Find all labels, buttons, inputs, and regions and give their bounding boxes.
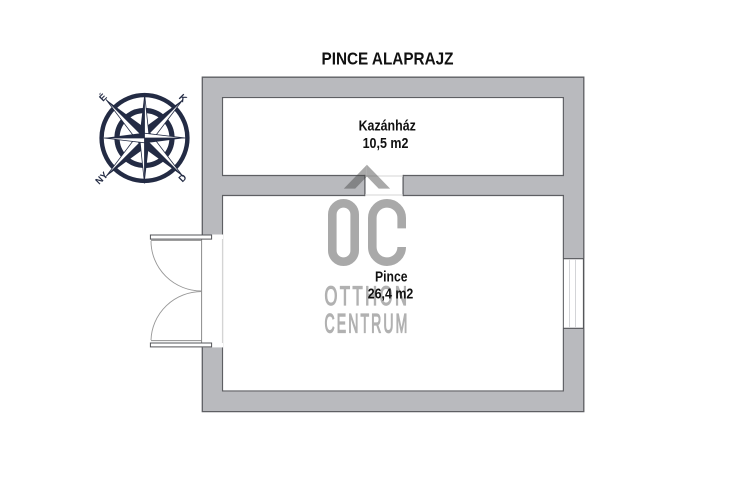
svg-text:Kazánház: Kazánház <box>359 118 416 134</box>
svg-text:Pince: Pince <box>375 270 408 286</box>
svg-text:CENTRUM: CENTRUM <box>325 309 410 339</box>
svg-text:26,4 m2: 26,4 m2 <box>368 287 414 303</box>
svg-text:10,5 m2: 10,5 m2 <box>363 136 409 152</box>
svg-text:PINCE ALAPRAJZ: PINCE ALAPRAJZ <box>322 49 454 69</box>
